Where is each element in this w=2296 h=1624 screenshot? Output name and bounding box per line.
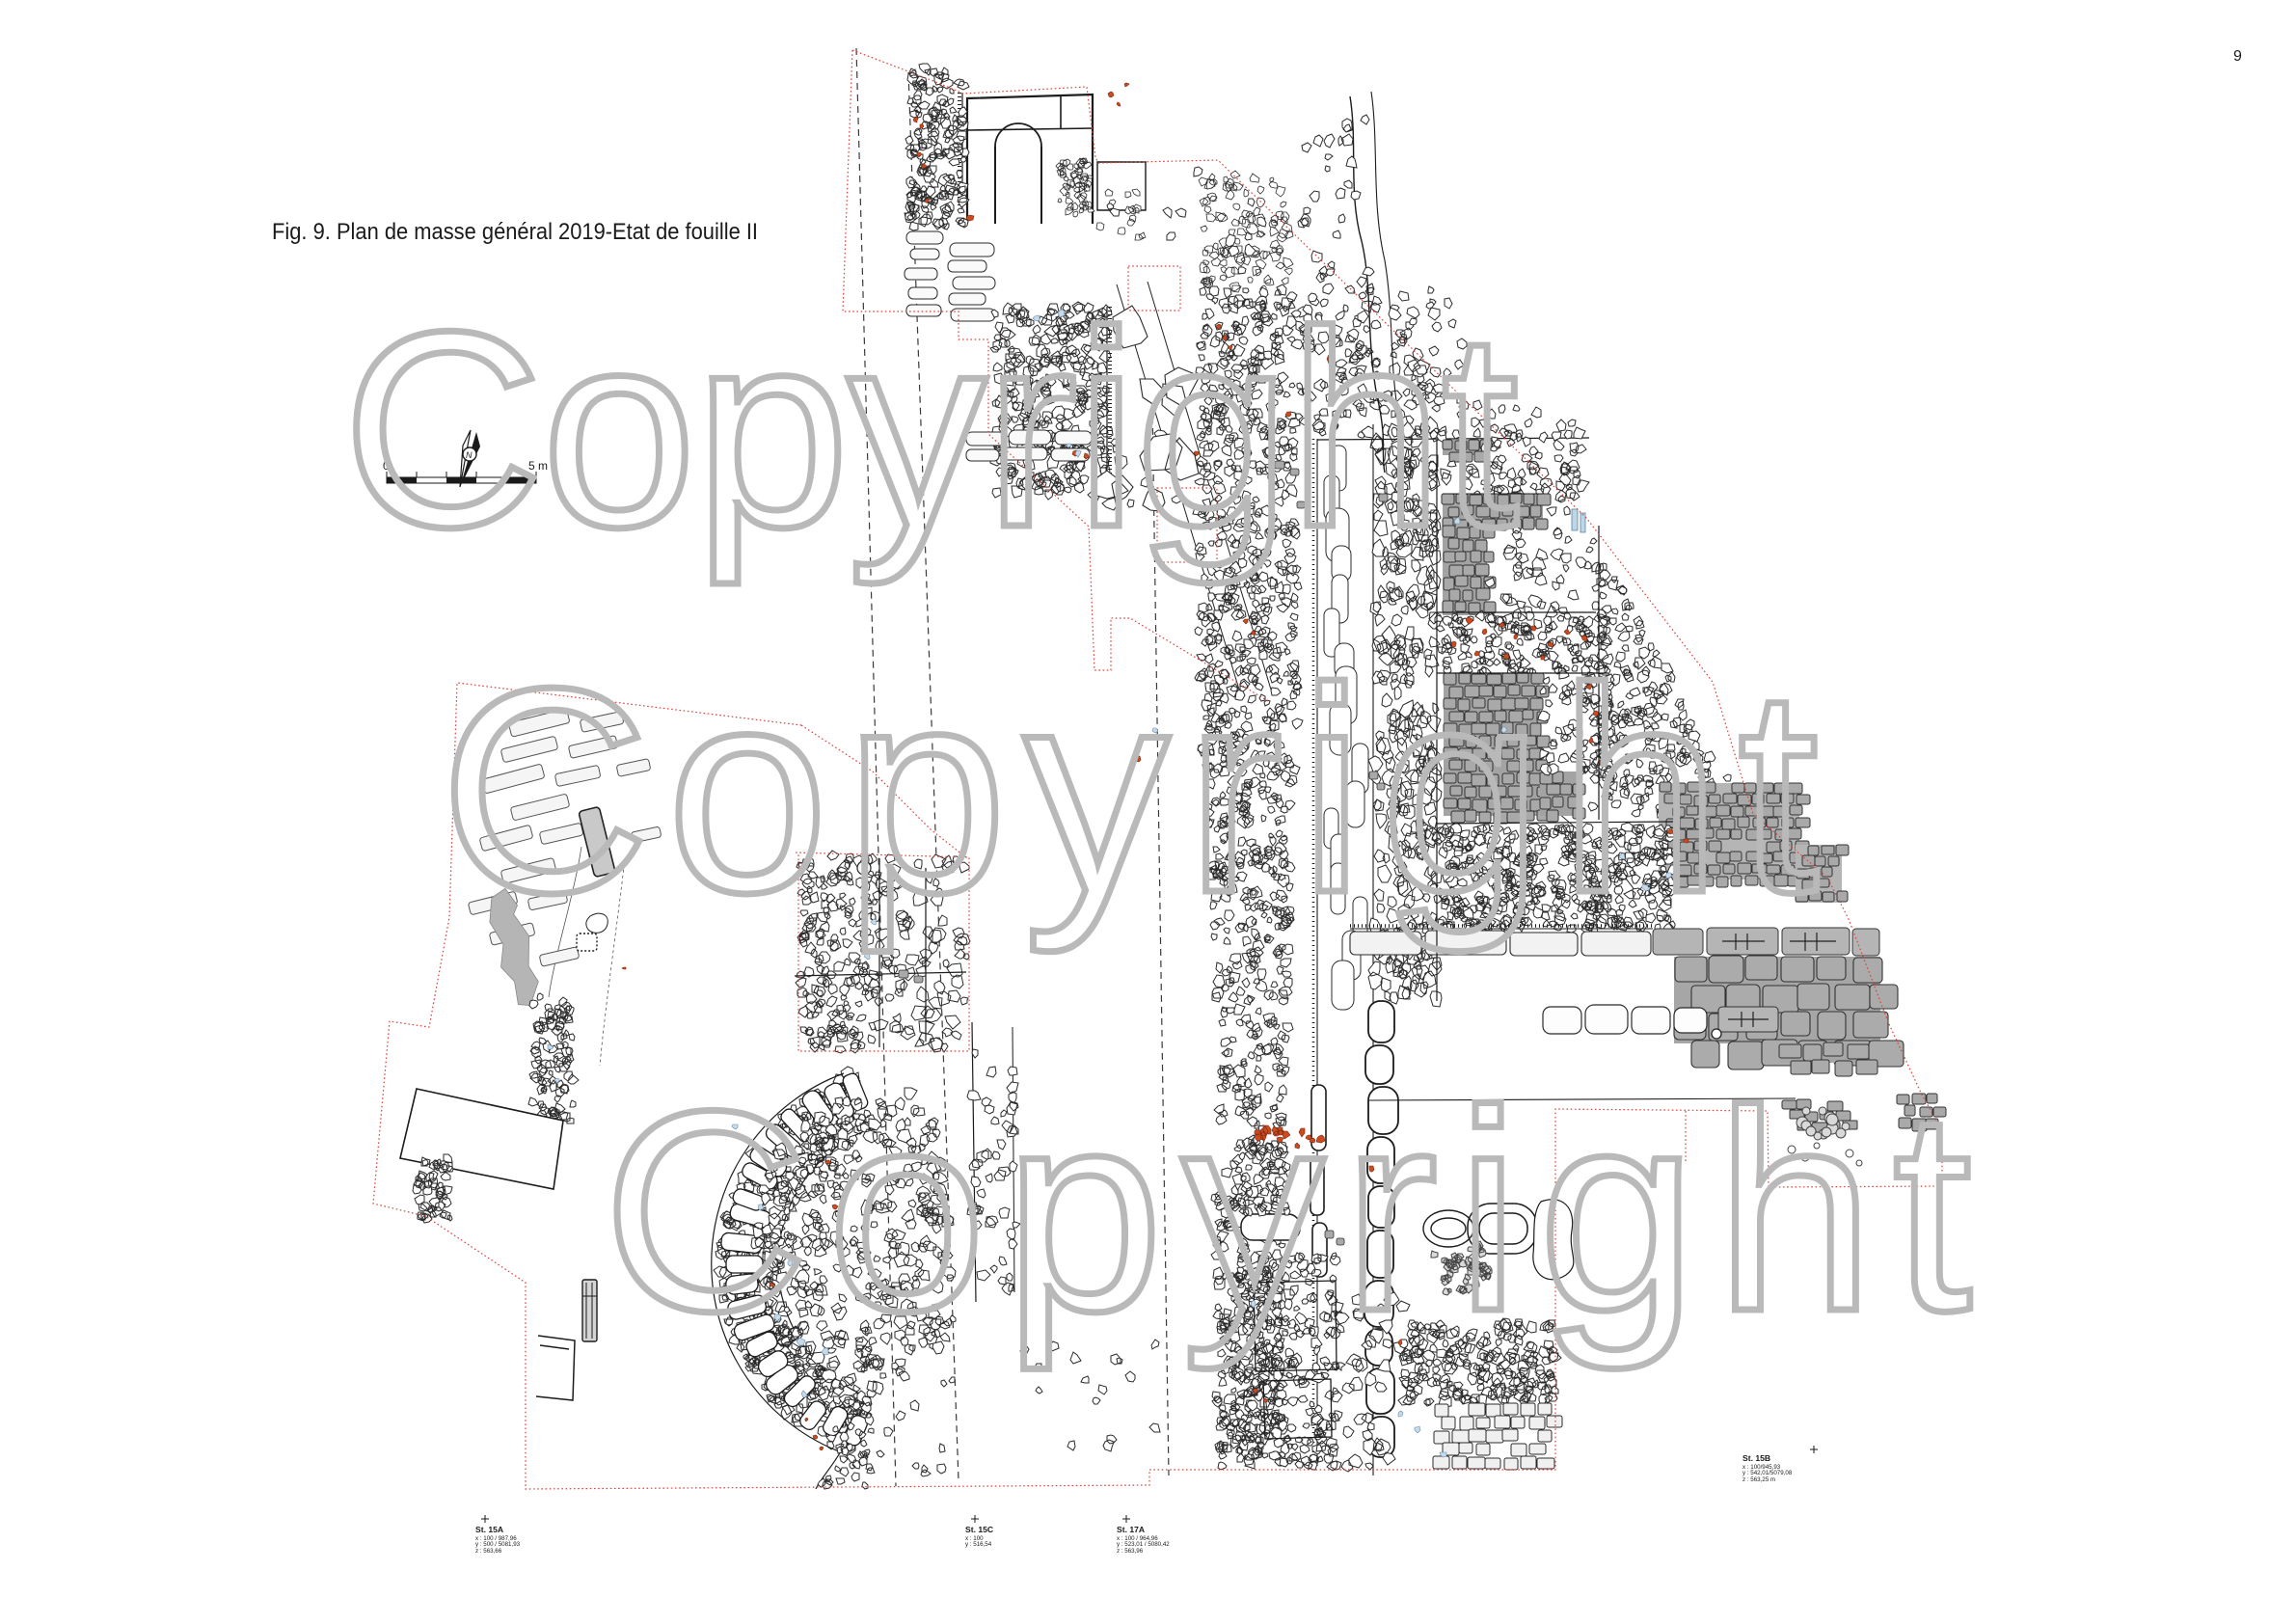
svg-text:Copyright: Copyright bbox=[440, 628, 1820, 955]
svg-text:z : 563,25 m: z : 563,25 m bbox=[1742, 1476, 1775, 1483]
svg-text:9: 9 bbox=[2233, 48, 2242, 65]
svg-text:Copyright: Copyright bbox=[342, 274, 1520, 586]
svg-text:Copyright: Copyright bbox=[603, 1051, 1973, 1372]
svg-text:St. 15A: St. 15A bbox=[475, 1525, 503, 1534]
svg-text:Fig. 9. Plan de masse général: Fig. 9. Plan de masse général 2019-Etat … bbox=[272, 219, 758, 245]
svg-text:St. 15B: St. 15B bbox=[1742, 1453, 1770, 1463]
svg-text:y : 542,01/5079,08: y : 542,01/5079,08 bbox=[1742, 1470, 1793, 1476]
svg-text:St. 17A: St. 17A bbox=[1117, 1525, 1145, 1534]
svg-text:y : 523,01 / 5080,42: y : 523,01 / 5080,42 bbox=[1117, 1541, 1170, 1548]
svg-text:St. 15C: St. 15C bbox=[965, 1525, 993, 1534]
svg-text:z : 563,96: z : 563,96 bbox=[1117, 1548, 1144, 1555]
svg-text:z : 563,66: z : 563,66 bbox=[475, 1548, 502, 1555]
svg-text:y : 500 / 5081,93: y : 500 / 5081,93 bbox=[475, 1541, 521, 1548]
svg-text:y : 516,54: y : 516,54 bbox=[965, 1541, 992, 1548]
